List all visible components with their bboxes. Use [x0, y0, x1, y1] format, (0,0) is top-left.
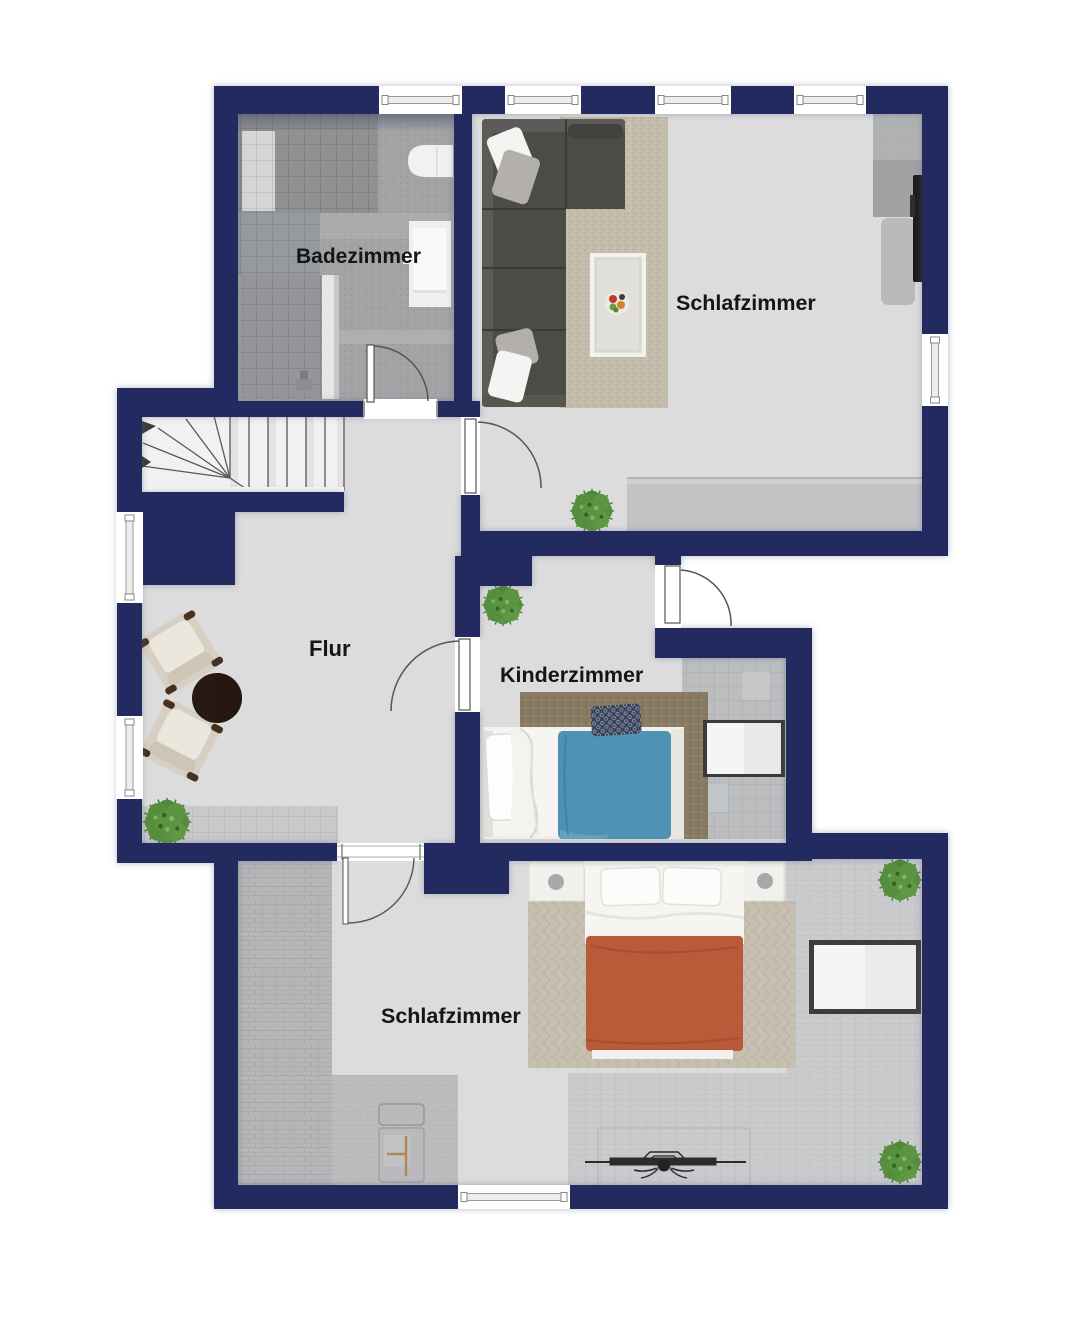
- svg-text:Flur: Flur: [309, 636, 351, 661]
- svg-text:Kinderzimmer: Kinderzimmer: [500, 663, 644, 687]
- svg-text:Badezimmer: Badezimmer: [296, 245, 421, 268]
- svg-text:Schlafzimmer: Schlafzimmer: [676, 291, 816, 315]
- svg-text:Schlafzimmer: Schlafzimmer: [381, 1004, 521, 1028]
